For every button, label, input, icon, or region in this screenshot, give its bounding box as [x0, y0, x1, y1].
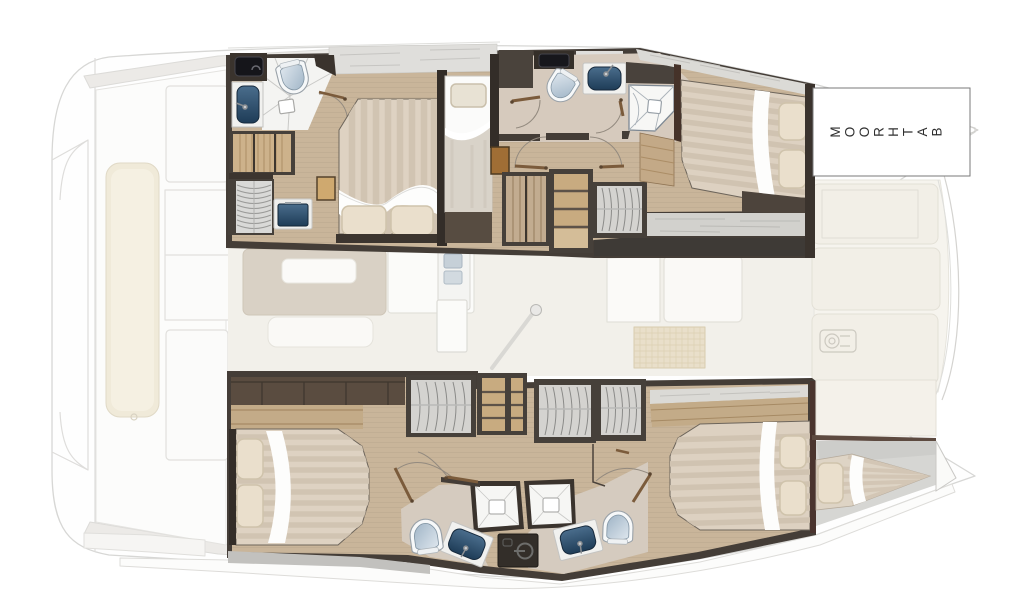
svg-text:H: H	[886, 127, 901, 137]
svg-text:R: R	[871, 127, 886, 137]
svg-text:T: T	[900, 128, 915, 136]
svg-text:A: A	[915, 127, 930, 136]
svg-text:M: M	[828, 126, 843, 137]
svg-text:O: O	[842, 127, 857, 138]
svg-text:O: O	[857, 127, 872, 138]
svg-text:B: B	[929, 127, 944, 136]
